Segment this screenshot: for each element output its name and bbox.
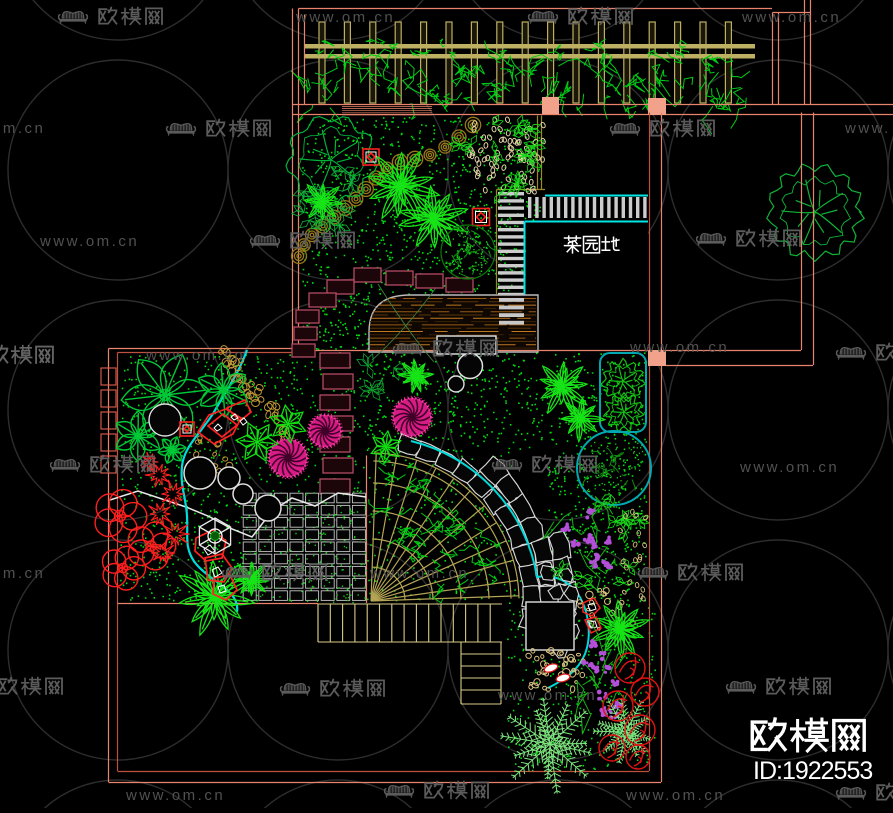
svg-text:www.: www.	[844, 120, 891, 137]
svg-text:www.om.cn: www.om.cn	[125, 787, 225, 804]
svg-text:www.om.cn: www.om.cn	[39, 233, 139, 250]
svg-text:om.cn: om.cn	[0, 120, 45, 137]
svg-text:ID:1922553: ID:1922553	[753, 757, 872, 785]
svg-text:www.om.cn: www.om.cn	[625, 787, 725, 804]
svg-text:www.om.cn: www.om.cn	[295, 9, 395, 26]
svg-text:www.om.cn: www.om.cn	[741, 9, 841, 26]
svg-text:om.cn: om.cn	[0, 565, 45, 582]
svg-text:www.om.cn: www.om.cn	[497, 687, 597, 704]
svg-text:www.om.cn: www.om.cn	[145, 347, 245, 364]
svg-text:www.om.cn: www.om.cn	[739, 459, 839, 476]
svg-text:www.om.cn: www.om.cn	[629, 339, 729, 356]
svg-text:www.om.cn: www.om.cn	[369, 565, 469, 582]
